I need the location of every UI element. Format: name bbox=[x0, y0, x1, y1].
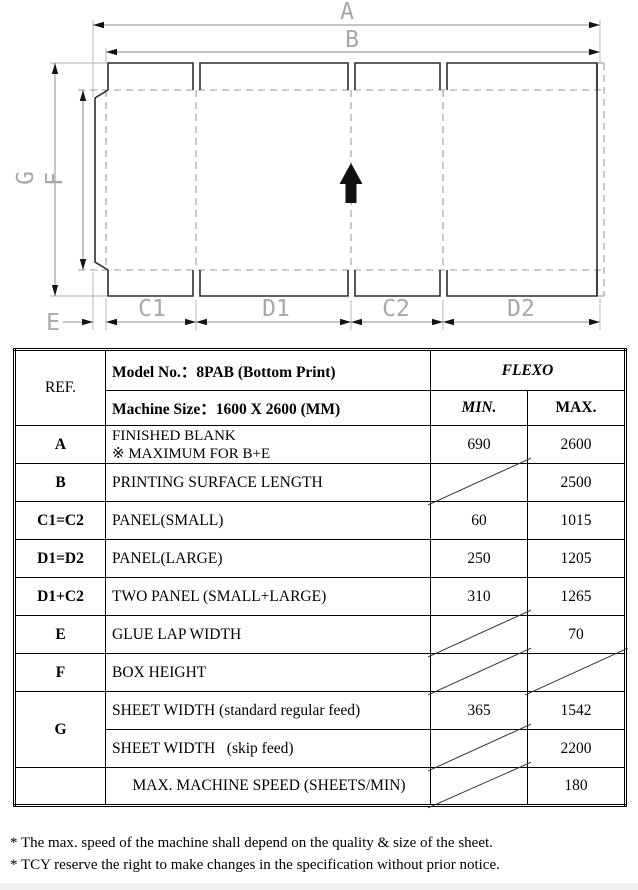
model-no-cell: Model No.：8PAB (Bottom Print) bbox=[106, 350, 431, 391]
ref-cell: A bbox=[15, 426, 106, 464]
ref-cell-empty bbox=[15, 768, 106, 806]
desc-cell: GLUE LAP WIDTH bbox=[106, 616, 431, 654]
ref-cell: C1=C2 bbox=[15, 502, 106, 540]
table-row-c1c2: C1=C2 PANEL(SMALL) 60 1015 bbox=[15, 502, 626, 540]
desc-cell: PANEL(SMALL) bbox=[106, 502, 431, 540]
desc-cell: PANEL(LARGE) bbox=[106, 540, 431, 578]
ref-cell: D1+C2 bbox=[15, 578, 106, 616]
spec-table: REF. Model No.：8PAB (Bottom Print) FLEXO… bbox=[13, 348, 627, 807]
table-row-a: A FINISHED BLANK ※ MAXIMUM FOR B+E 690 2… bbox=[15, 426, 626, 464]
dim-label-B: B bbox=[345, 27, 359, 53]
ref-cell: E bbox=[15, 616, 106, 654]
na-slash-icon bbox=[528, 654, 624, 691]
min-cell: 60 bbox=[431, 502, 528, 540]
dim-label-D2: D2 bbox=[507, 296, 535, 322]
min-cell-na bbox=[431, 616, 528, 654]
min-cell: 365 bbox=[431, 692, 528, 730]
min-cell-na bbox=[431, 768, 528, 806]
na-slash-icon bbox=[431, 616, 527, 653]
dim-label-C1: C1 bbox=[138, 296, 166, 322]
ref-cell: B bbox=[15, 464, 106, 502]
feed-direction-arrow-icon bbox=[340, 163, 363, 203]
box-blank-diagram: A B G F E C1 D1 C2 D2 bbox=[0, 0, 638, 345]
max-cell: 1205 bbox=[528, 540, 626, 578]
max-cell: 2200 bbox=[528, 730, 626, 768]
max-cell: 1015 bbox=[528, 502, 626, 540]
desc-line2: ※ MAXIMUM FOR B+E bbox=[112, 445, 426, 463]
max-column-header: MAX. bbox=[528, 391, 626, 426]
ref-cell: G bbox=[15, 692, 106, 768]
ref-cell: F bbox=[15, 654, 106, 692]
min-column-header: MIN. bbox=[431, 391, 528, 426]
dim-label-A: A bbox=[340, 0, 354, 25]
footnotes: * The max. speed of the machine shall de… bbox=[10, 832, 500, 876]
ref-column-header: REF. bbox=[15, 350, 106, 426]
na-slash-icon bbox=[431, 730, 527, 767]
fold-lines-dashed bbox=[78, 63, 604, 296]
min-cell: 690 bbox=[431, 426, 528, 464]
dim-label-E: E bbox=[46, 310, 60, 336]
dim-label-G: G bbox=[13, 171, 39, 185]
table-row-b: B PRINTING SURFACE LENGTH 2500 bbox=[15, 464, 626, 502]
window-bottom-edge bbox=[0, 883, 638, 890]
table-row-e: E GLUE LAP WIDTH 70 bbox=[15, 616, 626, 654]
extension-lines bbox=[50, 20, 600, 330]
desc-cell: SHEET WIDTH (skip feed) bbox=[106, 730, 431, 768]
dim-label-F: F bbox=[42, 172, 68, 186]
desc-line1: FINISHED BLANK bbox=[112, 427, 426, 445]
table-row-d1c2: D1+C2 TWO PANEL (SMALL+LARGE) 310 1265 bbox=[15, 578, 626, 616]
max-cell: 180 bbox=[528, 768, 626, 806]
desc-cell: PRINTING SURFACE LENGTH bbox=[106, 464, 431, 502]
flexo-header: FLEXO bbox=[431, 350, 626, 391]
desc-cell: BOX HEIGHT bbox=[106, 654, 431, 692]
min-cell: 310 bbox=[431, 578, 528, 616]
desc-cell: TWO PANEL (SMALL+LARGE) bbox=[106, 578, 431, 616]
dim-label-D1: D1 bbox=[262, 296, 290, 322]
machine-size-cell: Machine Size：1600 X 2600 (MM) bbox=[106, 391, 431, 426]
table-row-f: F BOX HEIGHT bbox=[15, 654, 626, 692]
footnote-rights: * TCY reserve the right to make changes … bbox=[10, 854, 500, 876]
min-cell-na bbox=[431, 730, 528, 768]
min-cell-na bbox=[431, 464, 528, 502]
max-cell: 2600 bbox=[528, 426, 626, 464]
dimension-lines bbox=[55, 25, 600, 322]
table-row-speed: MAX. MACHINE SPEED (SHEETS/MIN) 180 bbox=[15, 768, 626, 806]
max-cell: 1542 bbox=[528, 692, 626, 730]
dim-label-C2: C2 bbox=[382, 296, 410, 322]
table-row-d1d2: D1=D2 PANEL(LARGE) 250 1205 bbox=[15, 540, 626, 578]
desc-cell: FINISHED BLANK ※ MAXIMUM FOR B+E bbox=[106, 426, 431, 464]
max-cell: 70 bbox=[528, 616, 626, 654]
footnote-speed: * The max. speed of the machine shall de… bbox=[10, 832, 500, 854]
table-row-g-skip: SHEET WIDTH (skip feed) 2200 bbox=[15, 730, 626, 768]
max-cell-na bbox=[528, 654, 626, 692]
na-slash-icon bbox=[431, 654, 527, 691]
ref-cell: D1=D2 bbox=[15, 540, 106, 578]
min-cell: 250 bbox=[431, 540, 528, 578]
table-row-g-regular: G SHEET WIDTH (standard regular feed) 36… bbox=[15, 692, 626, 730]
max-cell: 2500 bbox=[528, 464, 626, 502]
min-cell-na bbox=[431, 654, 528, 692]
desc-cell: MAX. MACHINE SPEED (SHEETS/MIN) bbox=[106, 768, 431, 806]
na-slash-icon bbox=[431, 464, 527, 501]
desc-cell: SHEET WIDTH (standard regular feed) bbox=[106, 692, 431, 730]
max-cell: 1265 bbox=[528, 578, 626, 616]
na-slash-icon bbox=[431, 768, 527, 804]
dimension-arrowheads bbox=[52, 22, 600, 325]
